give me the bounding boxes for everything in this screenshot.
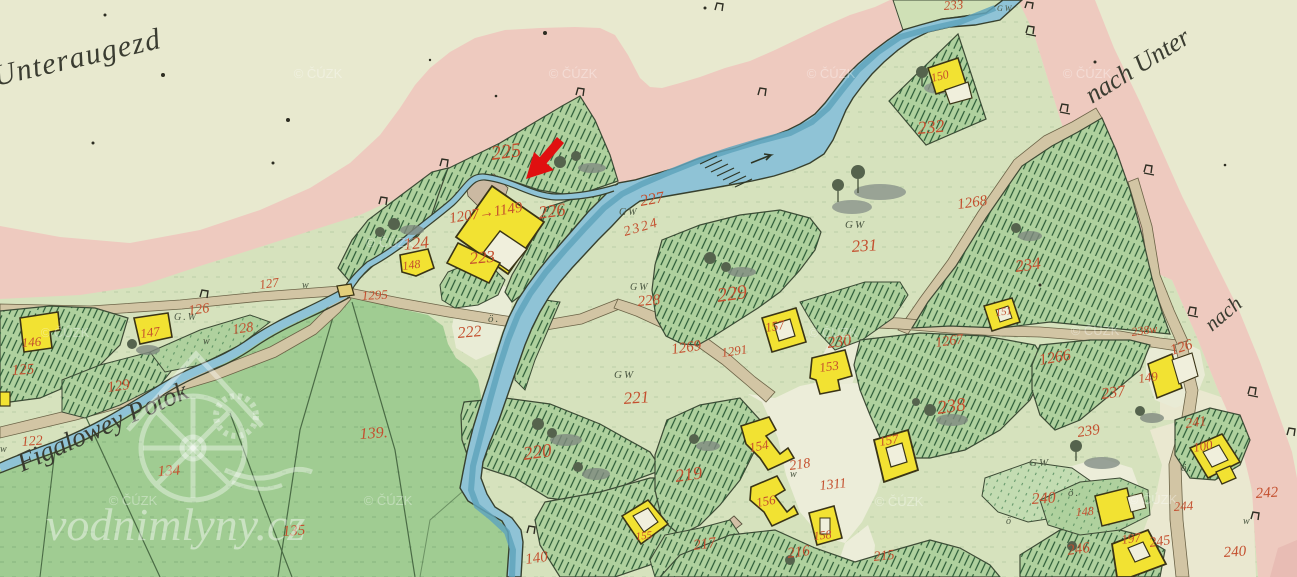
svg-text:240: 240 [1031,489,1056,508]
svg-text:GW: GW [614,369,635,381]
svg-text:147: 147 [139,323,161,341]
svg-text:© ČÚZK: © ČÚZK [294,66,343,81]
svg-text:w: w [302,280,311,291]
svg-text:155: 155 [635,529,653,543]
svg-text:w: w [1243,516,1252,527]
svg-text:© ČÚZK: © ČÚZK [875,494,924,509]
svg-text:146: 146 [21,334,42,350]
svg-text:234: 234 [1014,254,1042,276]
svg-text:139.: 139. [359,424,388,443]
svg-text:232: 232 [917,116,946,138]
svg-text:216: 216 [786,543,811,562]
svg-text:© ČÚZK: © ČÚZK [809,325,858,340]
svg-text:215: 215 [873,548,895,565]
svg-text:128: 128 [231,320,254,338]
svg-text:GW: GW [630,282,650,293]
svg-text:© ČÚZK: © ČÚZK [807,66,856,81]
svg-text:GW: GW [1029,457,1050,469]
svg-text:G.W: G.W [174,312,198,323]
svg-text:© ČÚZK: © ČÚZK [1063,66,1112,81]
svg-text:241: 241 [1184,414,1207,432]
svg-text:242: 242 [1255,484,1279,502]
svg-text:125: 125 [11,361,35,379]
svg-text:197: 197 [1120,529,1142,547]
svg-text:122: 122 [21,434,43,450]
svg-text:233: 233 [943,0,964,13]
svg-text:225: 225 [490,139,523,165]
svg-text:ö: ö [1006,516,1013,527]
svg-text:ö.: ö. [488,313,500,325]
svg-text:223: 223 [469,247,496,268]
svg-text:© ČÚZK: © ČÚZK [1129,492,1178,507]
svg-text:148: 148 [1075,504,1094,519]
svg-text:ö.: ö. [1181,462,1193,474]
svg-text:© ČÚZK: © ČÚZK [366,235,415,250]
svg-text:153: 153 [818,357,840,375]
svg-text:228: 228 [637,292,661,310]
svg-text:217: 217 [692,535,718,554]
svg-text:w: w [203,336,212,347]
svg-text:220: 220 [522,440,554,465]
svg-text:140: 140 [524,549,549,568]
svg-text:© ČÚZK: © ČÚZK [364,493,413,508]
svg-text:© ČÚZK: © ČÚZK [109,493,158,508]
svg-text:221: 221 [623,387,650,408]
svg-text:GW: GW [845,219,866,231]
svg-text:245: 245 [1148,533,1171,551]
svg-text:w: w [790,469,799,480]
svg-text:240: 240 [1223,543,1247,561]
svg-text:238: 238 [936,394,968,419]
svg-text:158: 158 [813,527,832,543]
svg-text:222: 222 [457,323,482,342]
svg-text:226: 226 [537,199,567,223]
svg-text:148: 148 [401,257,421,273]
svg-text:219: 219 [674,462,704,486]
svg-text:127: 127 [258,274,280,292]
svg-text:ö.: ö. [1068,487,1080,499]
svg-text:149: 149 [1137,368,1159,386]
svg-text:1295: 1295 [361,287,388,303]
svg-text:© ČÚZK: © ČÚZK [549,66,598,81]
svg-text:151: 151 [995,305,1013,319]
svg-text:239: 239 [1076,422,1101,441]
svg-text:229: 229 [716,281,749,307]
svg-text:231: 231 [851,235,878,256]
svg-text:GW: GW [997,4,1013,13]
svg-text:vodnimlyny.cz: vodnimlyny.cz [46,499,305,550]
svg-text:© ČÚZK: © ČÚZK [41,325,90,340]
svg-text:GW: GW [619,207,639,218]
svg-text:237: 237 [1100,383,1127,403]
svg-text:1311: 1311 [819,476,847,494]
svg-text:246: 246 [1066,540,1091,559]
svg-text:w: w [0,444,9,455]
svg-text:© ČÚZK: © ČÚZK [1071,323,1120,338]
svg-text:129: 129 [106,377,131,396]
